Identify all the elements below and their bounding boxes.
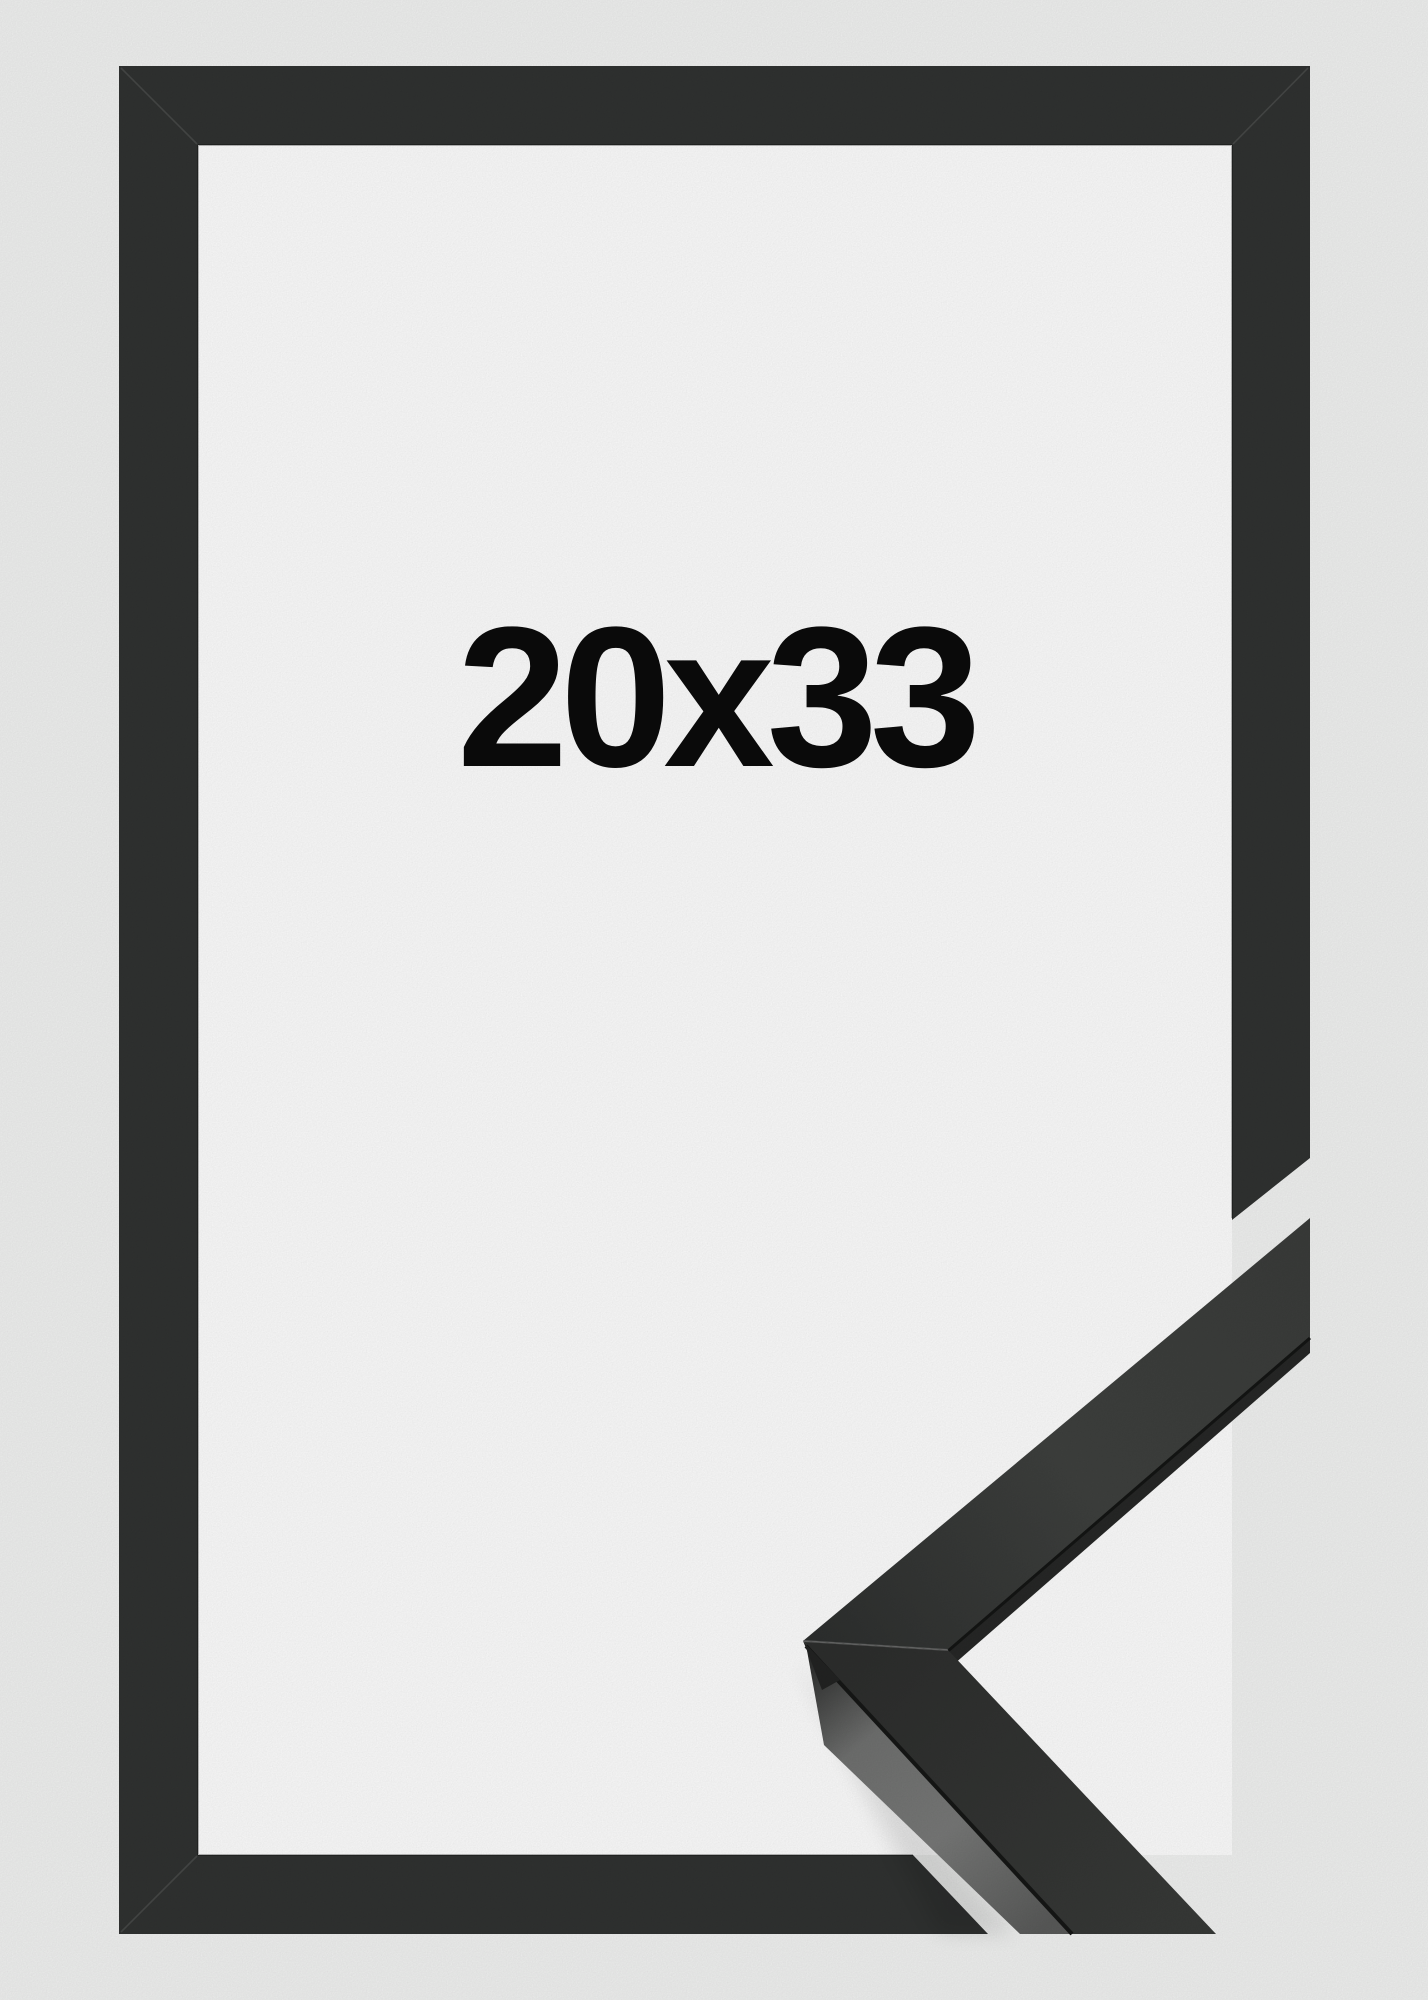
frame-photo-canvas [0,0,1428,2000]
frame-product-photo: 20x33 [0,0,1428,2000]
size-label: 20x33 [198,598,1232,798]
photo-grain-overlay [0,0,1428,2000]
